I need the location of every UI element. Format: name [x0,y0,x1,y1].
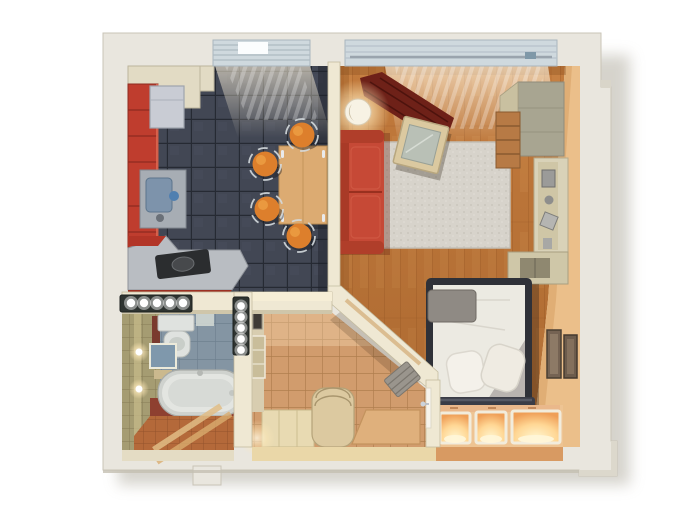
table-leg [322,214,325,222]
sink-basin [146,178,172,212]
hall-left-wall [252,311,265,412]
table-leg [322,150,325,158]
window-skylight [238,42,268,54]
spotlight-strip-horizontal [120,295,192,312]
art-canvas-2 [567,339,574,374]
spotlight-strip-vertical [233,297,249,357]
bathtub-basin [168,379,234,407]
wall-bottom-edge [103,470,579,473]
sofa-armrest-bottom [336,241,384,254]
room-kitchen-dining [128,40,332,299]
shelving-column [534,158,568,254]
shelf-vase [543,238,552,249]
hall-mirror [253,313,262,329]
table-leg [281,150,284,158]
art-canvas-1 [550,334,558,374]
bathtub [158,370,244,416]
bed-throw-gray [428,290,476,322]
room-bathroom [122,304,244,464]
wall-sconce [129,379,149,399]
bathroom-mirror-cabinet [150,344,176,368]
kitchen-window [213,40,310,66]
wardrobe [496,82,564,168]
shelf-bowl [545,196,554,205]
bathtub-fixture [197,370,203,376]
lit-niche [476,412,506,443]
toilet-tank [158,315,194,331]
lit-niche [512,411,560,443]
sink-item [156,214,164,222]
podium-front-face [436,447,563,461]
refrigerator [150,86,184,128]
spotlights [235,300,248,357]
wall-sconce [129,342,149,362]
sofa-armrest-top [336,130,384,143]
bed-podium [436,405,563,461]
floor-plan-render [0,0,695,521]
kitchen-living-divider-wall [328,62,340,292]
curtain-rod-bracket [525,52,536,59]
bench-seat [312,388,354,447]
entry-threshold-notch [193,466,221,485]
spotlights [124,296,190,310]
bathroom-bottom-wall-face [122,450,234,461]
floor-plan-stage [0,0,695,521]
sink-bowl [169,191,179,201]
lit-niche [440,413,470,443]
hall-wall-panel [252,336,265,378]
kitchen-soffit-step [200,66,214,91]
wall-step-facet [601,80,611,88]
living-window [345,40,557,66]
interior-door [426,388,431,428]
kitchen-opening-threshold [250,292,332,301]
hall-bottom-wall-face [252,447,436,461]
pillow [445,349,487,395]
shelf-photo-frame [542,170,555,187]
sofa [336,130,390,255]
